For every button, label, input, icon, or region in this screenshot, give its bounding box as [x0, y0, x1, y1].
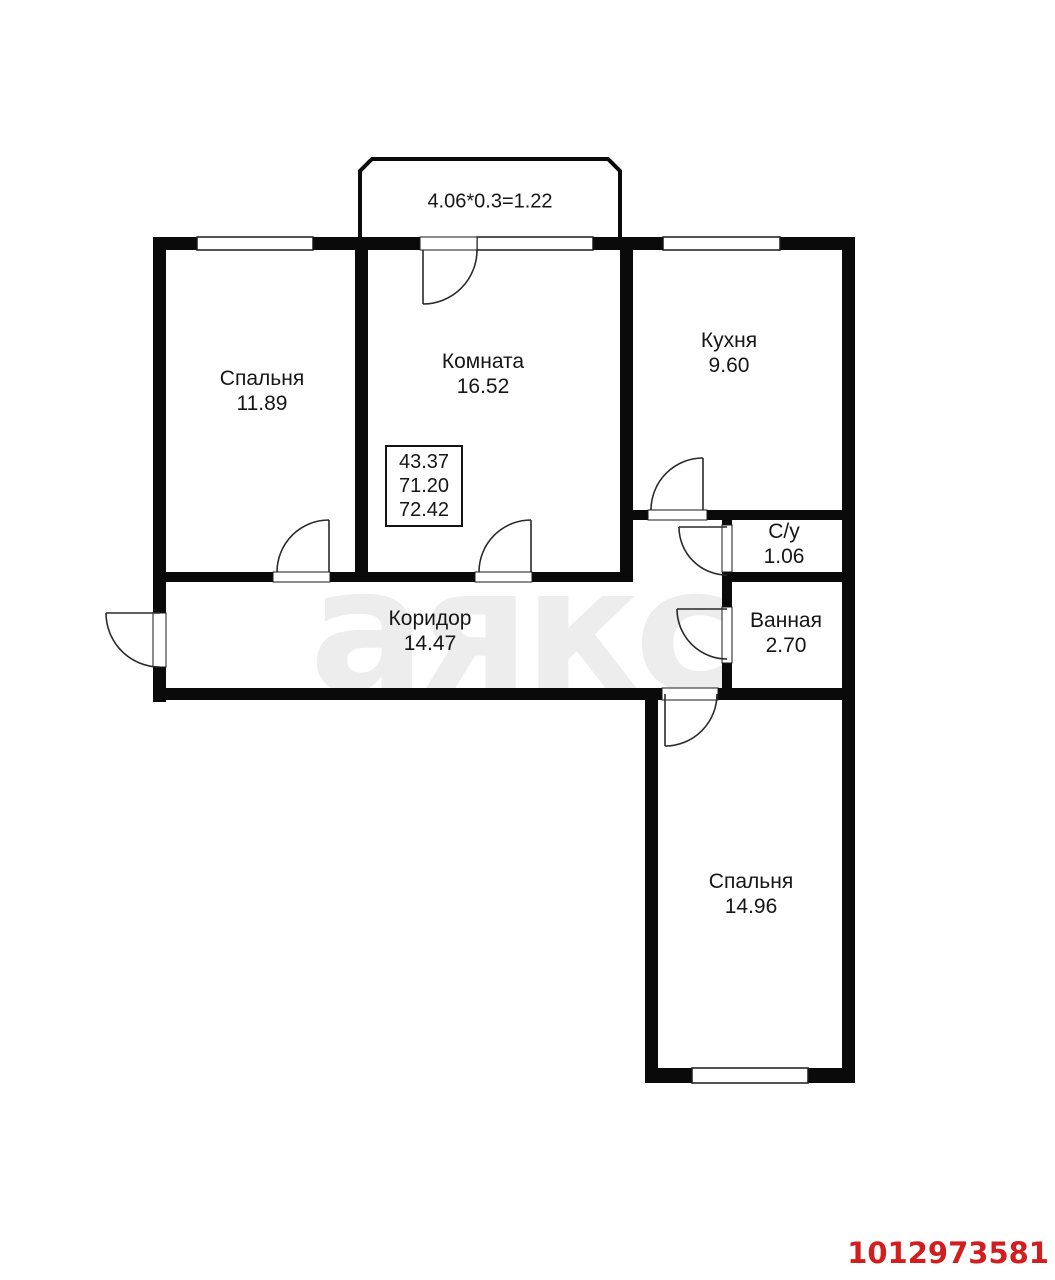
door-bathroom — [677, 609, 727, 659]
room-name: Спальня — [220, 367, 304, 390]
room-label-living: Комната 16.52 — [442, 350, 524, 400]
room-name: Ванная — [750, 609, 822, 632]
wall-wc-left-3 — [722, 663, 732, 688]
door-sill-living — [475, 572, 532, 582]
wall-wc-left-1 — [722, 520, 732, 525]
total-area-box: 43.37 71.20 72.42 — [385, 445, 463, 527]
room-label-bathroom: Ванная 2.70 — [750, 609, 822, 659]
window-living — [477, 237, 593, 250]
door-wc — [679, 527, 727, 575]
wall-corridor-top-1 — [166, 572, 273, 582]
room-name: Комната — [442, 350, 524, 373]
room-label-kitchen: Кухня 9.60 — [701, 329, 757, 379]
room-area: 14.47 — [389, 632, 472, 657]
wall-corridor-bottom-2 — [718, 688, 842, 700]
wall-left-upper — [153, 237, 166, 613]
door-living — [479, 520, 531, 572]
door-sill-bedroom2 — [662, 688, 718, 700]
door-sill-kitchen — [648, 510, 707, 520]
wall-corridor-top-2 — [330, 572, 475, 582]
wall-kitchen-bottom-2 — [707, 510, 842, 520]
room-label-bedroom2: Спальня 14.96 — [709, 870, 793, 920]
window-bedroom1 — [197, 237, 313, 250]
room-area: 16.52 — [442, 375, 524, 400]
room-label-corridor: Коридор 14.47 — [389, 607, 472, 657]
door-sill-bedroom1 — [273, 572, 330, 582]
wall-wc-left-2 — [722, 572, 732, 607]
wall-wc-bath-divider — [732, 572, 842, 582]
room-name: Коридор — [389, 607, 472, 630]
room-area: 9.60 — [701, 354, 757, 379]
wall-divider-bedroom-living — [355, 250, 368, 572]
wall-kitchen-bottom-1 — [633, 510, 648, 520]
room-area: 11.89 — [220, 392, 304, 417]
room-area: 1.06 — [764, 545, 805, 570]
balcony-dimension-label: 4.06*0.3=1.22 — [427, 191, 552, 214]
wall-bedroom2-bottom-1 — [645, 1068, 692, 1083]
room-area: 2.70 — [750, 634, 822, 659]
wall-bedroom2-bottom-2 — [808, 1068, 855, 1083]
floorplan-canvas: аякс — [0, 0, 1055, 1280]
total-area-line: 71.20 — [387, 474, 461, 498]
window-bedroom2 — [692, 1068, 808, 1083]
door-sill-entrance — [153, 613, 166, 667]
wall-bedroom2-left — [645, 688, 658, 1068]
wall-corridor-top-3 — [532, 572, 633, 582]
door-bedroom2 — [665, 694, 717, 746]
room-label-wc: С/у 1.06 — [764, 520, 805, 570]
room-label-bedroom1: Спальня 11.89 — [220, 367, 304, 417]
door-sill-bathroom — [722, 607, 732, 663]
wall-right — [842, 237, 855, 1083]
wall-top-2 — [313, 237, 420, 250]
wall-top-3 — [593, 237, 663, 250]
door-balcony — [423, 250, 477, 304]
door-sill-balcony — [420, 237, 477, 250]
listing-id: 1012973581 — [847, 1236, 1049, 1270]
room-name: Кухня — [701, 329, 757, 352]
total-area-line: 43.37 — [387, 450, 461, 474]
window-kitchen — [663, 237, 780, 250]
door-sill-wc — [722, 525, 732, 572]
door-entrance — [106, 613, 160, 667]
wall-corridor-bottom-1 — [153, 688, 662, 700]
room-area: 14.96 — [709, 895, 793, 920]
wall-divider-living-kitchen — [620, 250, 633, 582]
door-kitchen — [651, 458, 703, 510]
door-bedroom1 — [277, 520, 329, 572]
room-name: С/у — [768, 520, 800, 543]
total-area-line: 72.42 — [387, 498, 461, 522]
room-name: Спальня — [709, 870, 793, 893]
